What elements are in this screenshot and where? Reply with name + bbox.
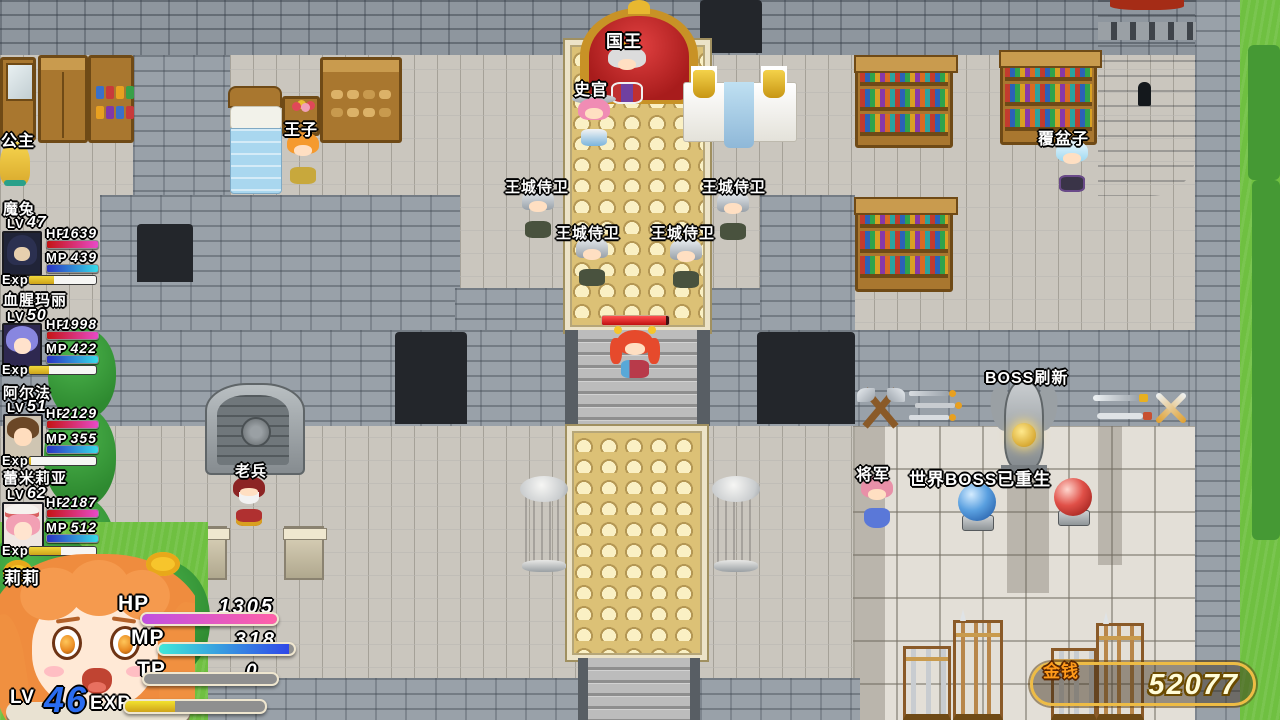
exp-label: Exp: [2, 272, 29, 287]
party-portrait: [2, 231, 42, 276]
player-mp-fill: [159, 644, 289, 654]
mirror: [6, 63, 34, 101]
portrait-face: [14, 338, 31, 354]
wardrobe-doors: [62, 72, 64, 138]
player-star-ornament: [614, 326, 622, 334]
player-face: [625, 343, 645, 355]
crossed-axes: [851, 386, 911, 428]
label-historian: 史官: [574, 76, 608, 100]
portrait-tongue: [88, 682, 106, 692]
hp-bar: [46, 420, 99, 429]
guard-armor: [579, 269, 605, 286]
player-exp-fill: [125, 701, 175, 712]
lv-value: 62: [27, 485, 47, 503]
label-world-boss: 世界BOSS已重生: [909, 465, 1051, 490]
bed: [228, 86, 282, 194]
hp-value: 2129: [60, 405, 97, 421]
exp-bar: [28, 275, 97, 285]
player-hp-bar: [601, 315, 670, 326]
mp-fill: [47, 265, 98, 272]
mp-bar: [46, 445, 99, 454]
player-twintail: [648, 338, 660, 364]
door-boss-emblem: [241, 417, 271, 447]
rack-bar: [956, 633, 1000, 637]
left-wall-doorway: [137, 224, 193, 282]
label-raspberry: 覆盆子: [1038, 125, 1089, 149]
pillar-cap: [520, 476, 568, 502]
hp-fill: [47, 332, 98, 339]
cabinet-top: [323, 60, 399, 72]
stone-pillar: [520, 476, 568, 572]
player-lv-label: LV: [10, 687, 35, 709]
stair-rail: [697, 330, 710, 426]
gold-counter: 金钱 52077: [1030, 662, 1256, 706]
hp-bar: [46, 509, 99, 518]
mp-value: 512: [60, 519, 97, 535]
lv-label: LV: [7, 216, 25, 231]
stair-rail: [565, 330, 578, 426]
hp-value: 1639: [60, 225, 97, 241]
jars: [96, 86, 104, 99]
party-panel: 魔兔 LV 47 HP 1639 MP 439 Exp: [0, 198, 100, 288]
stair-rail: [690, 658, 700, 720]
portrait-eye: [52, 626, 82, 660]
soldier-body: [236, 509, 262, 526]
pillar-shaft: [525, 496, 563, 566]
player-exp-bar: [123, 699, 267, 714]
exp-fill: [29, 457, 31, 465]
gold-label: 金钱: [1043, 657, 1079, 682]
lv-label: LV: [7, 487, 25, 502]
guard-face: [583, 249, 601, 260]
hp-fill: [47, 241, 98, 248]
npc-castle-guard[interactable]: [716, 190, 750, 240]
portrait-face: [14, 247, 30, 261]
guard-armor: [673, 271, 699, 288]
blue-orb[interactable]: [956, 483, 998, 531]
portrait-blush: [44, 666, 64, 677]
label-castle-guard: 王城侍卫: [702, 176, 766, 197]
mp-fill: [47, 356, 98, 363]
room-divider-wall: [133, 55, 230, 203]
tower-roof: [1110, 0, 1184, 10]
historian-face: [585, 108, 603, 119]
book-row: [860, 89, 948, 111]
prince-body: [290, 167, 316, 184]
princess-base: [4, 180, 26, 186]
king-robe: [611, 82, 643, 104]
mp-bar: [46, 355, 99, 364]
hp-value: 1998: [60, 316, 97, 332]
sword: [1093, 395, 1139, 401]
portrait-iris: [60, 635, 75, 654]
pillar-cap: [712, 476, 760, 502]
bed-headboard: [228, 86, 282, 108]
portrait-face: [14, 428, 32, 446]
guard-face: [724, 203, 742, 214]
stone-pillar: [712, 476, 760, 572]
label-castle-guard: 王城侍卫: [505, 176, 569, 197]
bookshelf: [855, 58, 953, 148]
guard-face: [529, 201, 547, 212]
label-boss-refresh: BOSS刷新: [985, 364, 1068, 388]
hp-bar: [46, 331, 99, 340]
stairs-bottom: [578, 658, 700, 720]
altar-runner: [724, 82, 754, 148]
general-face: [868, 489, 886, 500]
king-face: [618, 59, 636, 70]
grass-dark-patch: [1248, 45, 1280, 180]
raspberry-face: [1063, 153, 1081, 164]
wardrobe: [38, 55, 88, 143]
npc-old-soldier[interactable]: [232, 476, 266, 526]
soldier-face: [240, 488, 258, 496]
orb-ball: [1054, 478, 1092, 516]
player-twintail: [610, 338, 622, 364]
candelabra: [763, 70, 785, 98]
party-panel: 阿尔法 LV 51 HP 2129 MP 355 Exp: [0, 382, 100, 472]
player-mp-bar: [157, 642, 296, 656]
party-panel: 蕾米莉亚 LV 62 HP 2187 MP 512 Exp: [0, 467, 100, 562]
spear-rack: [953, 620, 1003, 720]
hp-fill: [47, 510, 98, 517]
red-orb[interactable]: [1052, 478, 1094, 526]
raspberry-body: [1059, 175, 1085, 192]
lower-wall-doorway: [757, 332, 855, 424]
gold-amount: 52077: [1148, 669, 1239, 702]
lv-label: LV: [7, 400, 25, 415]
mp-fill: [47, 535, 98, 542]
player-lv-value: 46: [44, 679, 88, 720]
hall-left-wall: [455, 288, 565, 333]
dagger-rack: [909, 387, 961, 427]
bed-blanket: [230, 128, 282, 194]
hp-value: 2187: [60, 494, 97, 510]
tower-arrow-slit: [1138, 82, 1151, 106]
flowers: [292, 102, 301, 111]
guard-armor: [720, 223, 746, 240]
axe-head: [887, 388, 905, 402]
label-castle-guard: 王城侍卫: [556, 222, 620, 243]
throne-finial: [628, 0, 650, 14]
statue-orb: [1012, 423, 1036, 447]
castle-tower: [1098, 0, 1196, 196]
pillar-base: [522, 560, 566, 572]
label-castle-guard: 王城侍卫: [651, 222, 715, 243]
guard-armor: [525, 221, 551, 238]
exp-bar: [28, 456, 97, 466]
book-row: [860, 231, 948, 253]
player-character[interactable]: [612, 328, 658, 380]
guard-face: [677, 251, 695, 262]
mp-value: 422: [60, 340, 97, 356]
book-row: [1005, 84, 1092, 106]
player-hp-fill: [142, 614, 277, 624]
bed-pillow: [230, 106, 282, 130]
pedestal-cap: [283, 528, 327, 540]
jar-shelf: [88, 55, 134, 143]
sword-rack: [903, 646, 951, 720]
wardrobe-top: [41, 58, 85, 70]
label-princess: 公主: [1, 127, 35, 151]
npc-castle-guard[interactable]: [575, 236, 609, 286]
lv-label: LV: [7, 309, 25, 324]
dagger: [909, 391, 949, 396]
party-panel: 血腥玛丽 LV 50 HP 1998 MP 422 Exp: [0, 289, 100, 379]
book-row: [860, 114, 948, 136]
shelf-top: [854, 55, 958, 73]
boss-statue[interactable]: [997, 381, 1051, 475]
hp-bar: [46, 240, 99, 249]
portrait-face: [14, 522, 32, 540]
exp-label: Exp: [2, 453, 29, 468]
general-dress: [864, 508, 890, 528]
lower-carpet: [567, 426, 707, 660]
rack-bar: [1099, 636, 1141, 640]
player-name: 莉莉: [4, 564, 40, 589]
stone-pedestal: [284, 526, 324, 580]
game-viewport: 公主 王子 国王 史官 王城侍卫 王城侍卫 王城侍卫 王城侍卫 覆盆子 老兵 将…: [0, 0, 1280, 720]
floor-shadow-column: [1098, 425, 1122, 565]
sword-hilt: [1139, 394, 1148, 402]
player-hp-fill: [602, 316, 666, 325]
bread-cabinet: [320, 57, 402, 143]
stair-rail: [578, 658, 588, 720]
exp-fill: [29, 276, 54, 284]
dagger-hilt: [949, 390, 956, 397]
npc-castle-guard[interactable]: [669, 238, 703, 288]
label-prince: 王子: [284, 116, 318, 140]
right-mid-wall: [760, 195, 855, 333]
altar-table: [683, 70, 795, 140]
sword-wall-mount: [1093, 393, 1153, 425]
grass-dark-patch: [1252, 180, 1280, 540]
bread-loaves: [331, 90, 343, 99]
tower-battlement: [1098, 22, 1196, 40]
exp-fill: [29, 366, 49, 374]
candelabra: [693, 70, 715, 98]
mp-bar: [46, 534, 99, 543]
npc-king[interactable]: [607, 46, 647, 104]
lower-wall-doorway: [395, 332, 467, 424]
axe-head: [857, 388, 875, 402]
pillar-shaft: [717, 496, 755, 566]
right-wall-column: [1195, 0, 1243, 720]
mp-fill: [47, 446, 98, 453]
player-body: [621, 360, 649, 378]
label-old-soldier: 老兵: [235, 460, 267, 481]
exp-label: Exp: [2, 362, 29, 377]
rack-bar: [906, 657, 948, 661]
historian-body: [581, 129, 607, 146]
npc-historian[interactable]: [577, 92, 611, 146]
mp-value: 439: [60, 249, 97, 265]
bookshelf: [855, 200, 953, 292]
pillar-base: [714, 560, 758, 572]
exp-bar: [28, 365, 97, 375]
shelf-top: [854, 197, 958, 215]
player-hp-bar: [140, 612, 279, 626]
label-king: 国王: [606, 27, 642, 52]
mp-value: 355: [60, 430, 97, 446]
player-tp-bar: [142, 672, 279, 686]
hp-fill: [47, 421, 98, 428]
shelf-top: [999, 50, 1102, 68]
prince-face: [294, 145, 312, 156]
book-row: [860, 256, 948, 278]
bottom-wall-right: [700, 678, 860, 720]
crossed-swords: [1150, 390, 1192, 426]
mp-bar: [46, 264, 99, 273]
label-general: 将军: [856, 461, 890, 485]
lv-value: 47: [27, 214, 47, 232]
